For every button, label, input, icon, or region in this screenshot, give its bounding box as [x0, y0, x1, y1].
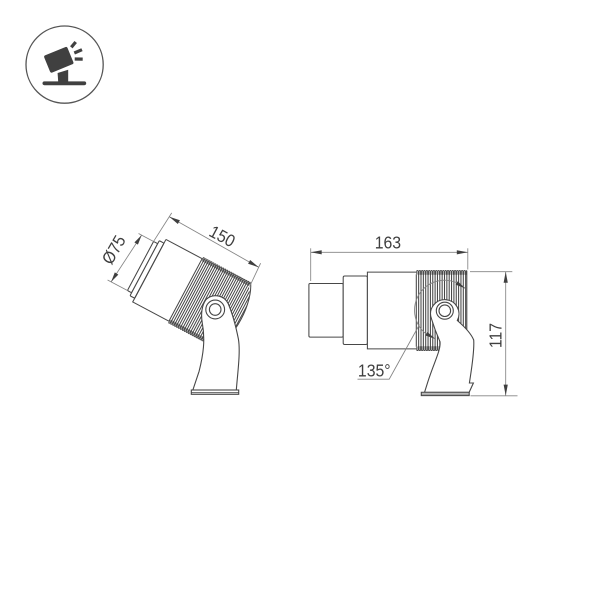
svg-text:117: 117: [486, 323, 506, 348]
svg-text:163: 163: [375, 233, 401, 253]
svg-text:135°: 135°: [358, 361, 391, 381]
